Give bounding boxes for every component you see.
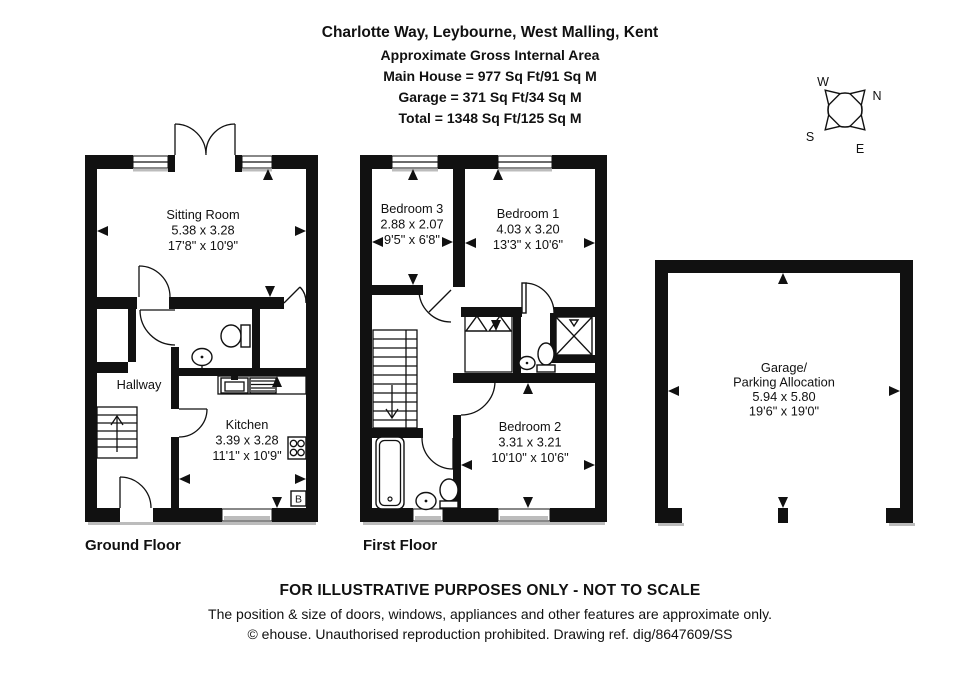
floorplan-drawing: W N S E: [0, 0, 980, 692]
sink: [221, 376, 248, 393]
bedroom3-metric: 2.88 x 2.07: [380, 217, 443, 232]
boiler-label: B: [295, 494, 302, 506]
kitchen-door: [179, 409, 207, 437]
wardrobe: [465, 315, 512, 372]
bedroom1-name: Bedroom 1: [497, 206, 560, 221]
compass-n: N: [872, 89, 881, 103]
french-doors: [175, 124, 235, 155]
kitchen-metric: 3.39 x 3.28: [215, 433, 278, 448]
bathroom-door: [422, 438, 453, 469]
garage-door-post: [778, 508, 788, 523]
sitting-room-door: [139, 266, 170, 297]
window: [242, 156, 272, 168]
kitchen-name: Kitchen: [226, 417, 269, 432]
basin: [416, 493, 436, 510]
compass-e: E: [856, 142, 864, 156]
window: [222, 509, 272, 521]
garage-plan: Garage/ Parking Allocation 5.94 x 5.80 1…: [655, 260, 915, 526]
compass-rose: W N S E: [806, 75, 882, 156]
toilet: [440, 479, 458, 508]
sitting-room-name: Sitting Room: [166, 207, 239, 222]
garage-name-line1: Garage/: [761, 360, 808, 375]
bedroom3-name: Bedroom 3: [381, 201, 444, 216]
garage-metric: 5.94 x 5.80: [752, 389, 815, 404]
ground-floor-plan: B Sitting Room 5.38 x 3.28 17'8" x 10'9"…: [85, 124, 318, 525]
sitting-room-imperial: 17'8" x 10'9": [168, 238, 238, 253]
bedroom1-metric: 4.03 x 3.20: [496, 222, 559, 237]
front-door: [120, 477, 151, 508]
bedroom1-imperial: 13'3" x 10'6": [493, 237, 563, 252]
window: [498, 509, 550, 521]
compass-point-nw: [825, 90, 840, 105]
basin: [519, 357, 535, 370]
bedroom3-door: [419, 290, 451, 322]
bedroom3-imperial: 9'5" x 6'8": [384, 232, 440, 247]
cupboard-door: [284, 287, 306, 303]
window: [133, 156, 168, 168]
bedroom1-door: [522, 283, 554, 313]
stairs-up: [97, 407, 137, 458]
window: [498, 156, 552, 168]
kitchen-counter: [218, 376, 306, 394]
garage-imperial: 19'6" x 19'0": [749, 404, 819, 419]
floorplan-page: { "header": { "title": "Charlotte Way, L…: [0, 0, 980, 692]
boiler: B: [291, 491, 306, 506]
bedroom2-imperial: 10'10" x 10'6": [491, 450, 568, 465]
bedroom2-metric: 3.31 x 3.21: [498, 435, 561, 450]
toilet: [221, 325, 250, 347]
stairs-down: [373, 330, 417, 428]
wc-door: [140, 310, 175, 345]
toilet: [537, 343, 555, 372]
bathtub: [376, 437, 404, 509]
drainer: [250, 378, 276, 393]
compass-point-ne: [850, 90, 865, 105]
basin: [192, 349, 212, 370]
bedroom2-door: [461, 381, 495, 415]
ground-interior-walls: [97, 297, 318, 508]
hob: [288, 437, 306, 459]
sitting-room-metric: 5.38 x 3.28: [171, 223, 234, 238]
bedroom2-name: Bedroom 2: [499, 419, 562, 434]
window: [392, 156, 438, 168]
kitchen-imperial: 11'1" x 10'9": [212, 448, 281, 463]
window: [413, 509, 443, 521]
garage-name-line2: Parking Allocation: [733, 375, 835, 390]
shower-cubicle: [556, 317, 592, 355]
compass-s: S: [806, 130, 814, 144]
compass-point-se: [850, 115, 865, 130]
compass-point-sw: [825, 115, 840, 130]
first-floor-plan: Bedroom 3 2.88 x 2.07 9'5" x 6'8" Bedroo…: [360, 155, 607, 525]
hallway-name: Hallway: [117, 377, 162, 392]
compass-w: W: [817, 75, 829, 89]
